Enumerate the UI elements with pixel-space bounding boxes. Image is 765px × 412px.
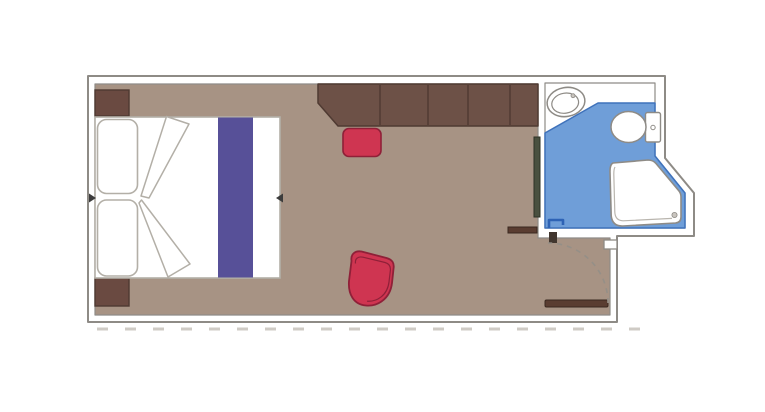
pillow-bottom bbox=[98, 200, 138, 276]
cabin-floor-plan bbox=[0, 0, 765, 412]
armchair bbox=[349, 251, 394, 305]
bed-runner bbox=[218, 118, 253, 278]
toilet bbox=[611, 112, 661, 143]
nightstand-bottom bbox=[95, 278, 129, 306]
wall-ledge bbox=[508, 227, 537, 233]
double-bed bbox=[95, 117, 280, 279]
desk-stool bbox=[343, 129, 381, 157]
pillow-top bbox=[98, 120, 138, 194]
nightstand-top bbox=[95, 90, 129, 116]
floor-plan-canvas bbox=[0, 0, 765, 412]
mirror-panel bbox=[534, 137, 540, 217]
entry-door-leaf bbox=[545, 300, 608, 307]
wardrobe-closet bbox=[318, 84, 538, 126]
toilet-bowl bbox=[611, 112, 646, 143]
door-strike-notch bbox=[604, 240, 617, 249]
shower-drain-icon bbox=[672, 212, 677, 217]
door-jamb bbox=[549, 232, 557, 243]
washbasin-drain-icon bbox=[571, 93, 576, 98]
toilet-tank bbox=[646, 113, 661, 143]
